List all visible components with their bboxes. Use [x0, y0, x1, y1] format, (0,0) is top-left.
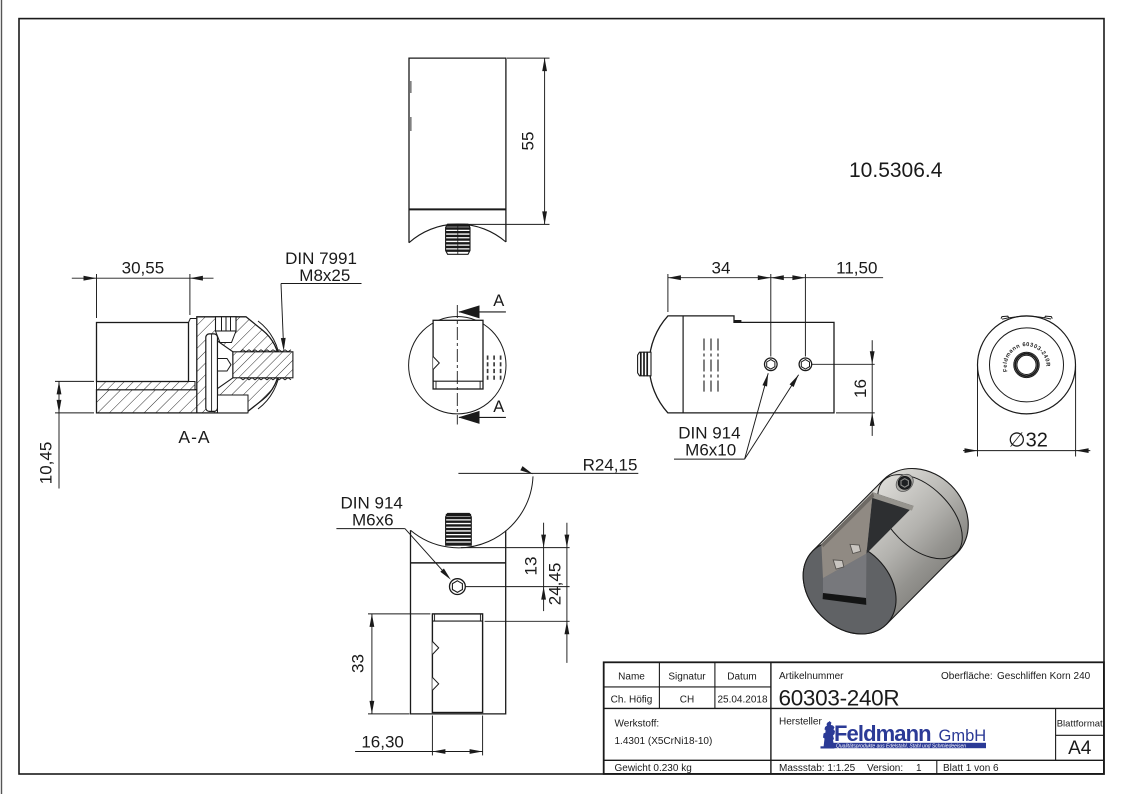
svg-text:A-A: A-A — [178, 427, 210, 447]
svg-text:30,55: 30,55 — [122, 259, 165, 278]
svg-text:Werkstoff:: Werkstoff: — [615, 719, 660, 730]
svg-text:A: A — [493, 292, 504, 310]
svg-text:Ch. Höfig: Ch. Höfig — [611, 695, 653, 706]
svg-text:Hersteller: Hersteller — [779, 717, 822, 728]
svg-text:34: 34 — [712, 259, 731, 278]
svg-text:R24,15: R24,15 — [583, 456, 638, 475]
svg-text:55: 55 — [519, 132, 538, 151]
svg-text:24,45: 24,45 — [546, 563, 565, 606]
svg-text:A4: A4 — [1068, 738, 1092, 759]
svg-text:Geschliffen Korn 240: Geschliffen Korn 240 — [997, 671, 1091, 682]
svg-text:10.5306.4: 10.5306.4 — [849, 159, 943, 182]
svg-text:Blattformat: Blattformat — [1057, 719, 1103, 730]
svg-text:Name: Name — [618, 672, 645, 683]
svg-text:25.04.2018: 25.04.2018 — [717, 695, 767, 706]
svg-text:GmbH: GmbH — [939, 727, 987, 745]
svg-text:16,30: 16,30 — [361, 733, 404, 752]
svg-text:16: 16 — [851, 379, 870, 398]
svg-text:Datum: Datum — [727, 672, 756, 683]
svg-text:Feldmann: Feldmann — [834, 721, 931, 746]
svg-text:CH: CH — [680, 695, 694, 706]
svg-text:Massstab: 1:1.25: Massstab: 1:1.25 — [779, 763, 856, 774]
svg-text:Qualitätsprodukte aus Edelstah: Qualitätsprodukte aus Edelstahl, Stahl u… — [836, 743, 966, 749]
svg-text:Signatur: Signatur — [668, 672, 706, 683]
svg-text:A: A — [493, 398, 504, 416]
svg-text:11,50: 11,50 — [836, 259, 877, 278]
svg-text:Blatt 1 von 6: Blatt 1 von 6 — [943, 763, 999, 774]
svg-text:M6x6: M6x6 — [352, 511, 394, 530]
svg-text:33: 33 — [349, 654, 368, 673]
svg-text:M8x25: M8x25 — [299, 266, 350, 285]
svg-text:1.4301 (X5CrNi18-10): 1.4301 (X5CrNi18-10) — [615, 736, 713, 747]
svg-text:Oberfläche:: Oberfläche: — [941, 671, 993, 682]
svg-text:1: 1 — [916, 763, 922, 774]
svg-text:Gewicht 0.230 kg: Gewicht 0.230 kg — [615, 763, 692, 774]
svg-text:M6x10: M6x10 — [685, 441, 736, 460]
svg-text:Artikelnummer: Artikelnummer — [779, 671, 844, 682]
svg-text:10,45: 10,45 — [37, 442, 56, 485]
svg-text:∅32: ∅32 — [1008, 430, 1048, 452]
svg-text:13: 13 — [522, 557, 541, 576]
svg-text:60303-240R: 60303-240R — [779, 686, 900, 711]
svg-text:Version:: Version: — [867, 763, 903, 774]
